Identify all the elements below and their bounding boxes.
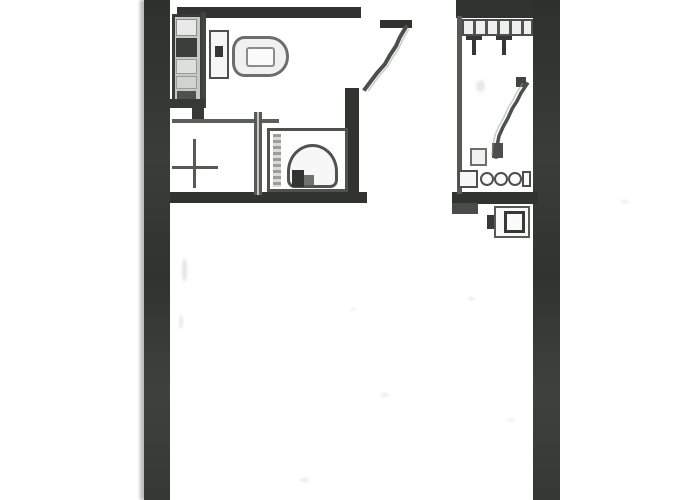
scanned-page — [0, 0, 700, 500]
ladder-foot — [492, 143, 503, 158]
closet-box — [470, 148, 487, 166]
scan-noise — [300, 478, 309, 482]
wall-unit-bottom — [170, 192, 367, 203]
cabinet-cell — [176, 59, 197, 74]
cabinet-stub — [192, 104, 204, 120]
partition-wall — [254, 112, 262, 195]
counter-hatch — [273, 134, 281, 187]
cabinet-cell-dark — [176, 38, 197, 57]
hanger-hook-stem — [472, 40, 476, 55]
cross-mark-vertical — [193, 139, 196, 188]
scan-noise — [179, 315, 183, 329]
cabinet-divider-line — [201, 12, 206, 108]
closet-shelf-row — [462, 19, 533, 36]
drawer-rect — [458, 170, 478, 188]
wall-box-inner — [504, 211, 525, 233]
scan-noise — [476, 80, 485, 92]
scan-noise — [350, 308, 356, 311]
wall-box-tick — [487, 215, 494, 229]
scan-noise — [621, 200, 629, 203]
cabinet-cell — [176, 19, 197, 36]
drawer-knob — [508, 172, 522, 186]
scan-noise — [182, 258, 187, 282]
drawer-knob — [480, 172, 494, 186]
floor-plan — [0, 0, 700, 500]
drawer-end — [522, 171, 531, 187]
wall-left — [144, 0, 170, 500]
sink-drain — [292, 170, 304, 187]
hanger-hook-stem — [502, 40, 506, 55]
entry-door-swing-ghost — [368, 29, 409, 91]
wall-closet-left — [457, 16, 462, 194]
drawer-knob — [494, 172, 508, 186]
bathroom-divider-line — [172, 119, 279, 123]
wall-closet-step — [452, 203, 478, 214]
sink-tap — [304, 175, 314, 186]
wall-right — [533, 0, 560, 500]
scan-noise — [508, 418, 514, 421]
entry-door-swing — [365, 27, 406, 89]
ladder-top-mark — [516, 77, 526, 87]
toilet-flush-button — [215, 46, 223, 57]
line-art-overlay — [0, 0, 700, 500]
toilet-seat — [246, 47, 275, 67]
scan-noise — [380, 393, 389, 397]
scan-noise — [468, 297, 475, 300]
entry-door-lintel — [380, 20, 412, 28]
cabinet-cell — [176, 76, 197, 89]
